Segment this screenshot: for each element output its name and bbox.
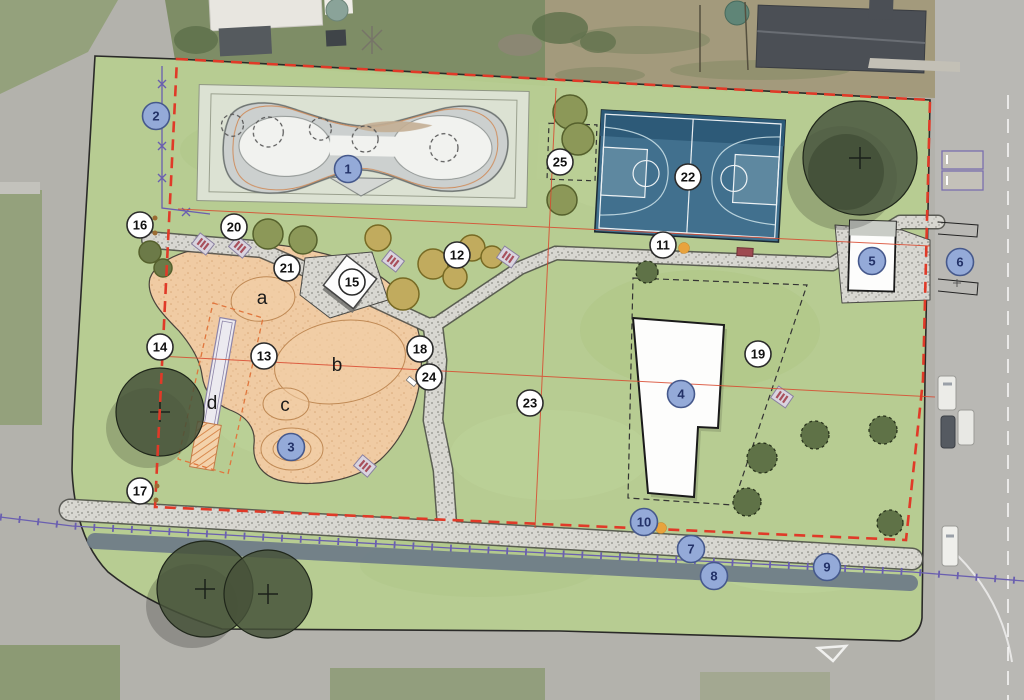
svg-text:24: 24 bbox=[422, 370, 437, 385]
marker-d: d bbox=[207, 393, 218, 414]
orange-dot-11 bbox=[679, 243, 690, 254]
svg-text:18: 18 bbox=[413, 342, 427, 357]
svg-text:25: 25 bbox=[553, 155, 567, 170]
svg-text:2: 2 bbox=[152, 109, 159, 124]
marker-9: 9 bbox=[814, 554, 841, 581]
marker-19: 19 bbox=[745, 341, 771, 367]
svg-text:3: 3 bbox=[287, 440, 294, 455]
svg-text:a: a bbox=[257, 288, 268, 309]
marker-13: 13 bbox=[251, 343, 277, 369]
marker-23: 23 bbox=[517, 390, 543, 416]
marker-14: 14 bbox=[147, 334, 173, 360]
svg-text:7: 7 bbox=[687, 542, 694, 557]
svg-text:23: 23 bbox=[523, 396, 537, 411]
svg-text:d: d bbox=[207, 393, 218, 414]
svg-text:8: 8 bbox=[710, 569, 717, 584]
marker-17: 17 bbox=[127, 478, 153, 504]
marker-4: 4 bbox=[668, 381, 695, 408]
svg-text:11: 11 bbox=[656, 238, 670, 253]
svg-text:9: 9 bbox=[823, 560, 830, 575]
marker-11: 11 bbox=[650, 232, 676, 258]
svg-text:10: 10 bbox=[637, 515, 651, 530]
marker-16: 16 bbox=[127, 212, 153, 238]
svg-text:14: 14 bbox=[153, 340, 168, 355]
svg-text:12: 12 bbox=[450, 248, 464, 263]
marker-7: 7 bbox=[678, 536, 705, 563]
marker-3: 3 bbox=[278, 434, 305, 461]
svg-text:15: 15 bbox=[345, 275, 359, 290]
svg-text:17: 17 bbox=[133, 484, 147, 499]
marker-25: 25 bbox=[547, 149, 573, 175]
marker-18: 18 bbox=[407, 336, 433, 362]
svg-text:b: b bbox=[332, 355, 343, 376]
marker-22: 22 bbox=[675, 164, 701, 190]
svg-text:1: 1 bbox=[344, 162, 351, 177]
marker-12: 12 bbox=[444, 242, 470, 268]
marker-5: 5 bbox=[859, 248, 886, 275]
marker-24: 24 bbox=[416, 364, 442, 390]
park-site-plan: 1112131415161718192021222324251234567891… bbox=[0, 0, 1024, 700]
fallen-tree-debris bbox=[498, 34, 542, 56]
marker-a: a bbox=[257, 288, 268, 309]
site-plan-image: 1112131415161718192021222324251234567891… bbox=[0, 0, 1024, 700]
svg-text:13: 13 bbox=[257, 349, 271, 364]
marker-c: c bbox=[280, 395, 290, 416]
marker-6: 6 bbox=[947, 249, 974, 276]
svg-text:20: 20 bbox=[227, 220, 241, 235]
svg-text:6: 6 bbox=[956, 255, 963, 270]
svg-text:19: 19 bbox=[751, 347, 765, 362]
solar-panel bbox=[326, 29, 347, 46]
skate-park bbox=[197, 85, 529, 208]
svg-text:16: 16 bbox=[133, 218, 147, 233]
marker-20: 20 bbox=[221, 214, 247, 240]
svg-text:4: 4 bbox=[677, 387, 685, 402]
tank-round bbox=[326, 0, 348, 21]
svg-text:22: 22 bbox=[681, 170, 695, 185]
marker-15: 15 bbox=[339, 269, 365, 295]
marker-b: b bbox=[332, 355, 343, 376]
svg-text:c: c bbox=[280, 395, 290, 416]
marker-2: 2 bbox=[143, 103, 170, 130]
marker-8: 8 bbox=[701, 563, 728, 590]
marker-10: 10 bbox=[631, 509, 658, 536]
marker-1: 1 bbox=[335, 156, 362, 183]
marker-21: 21 bbox=[274, 255, 300, 281]
svg-text:5: 5 bbox=[868, 254, 875, 269]
svg-text:21: 21 bbox=[280, 261, 294, 276]
